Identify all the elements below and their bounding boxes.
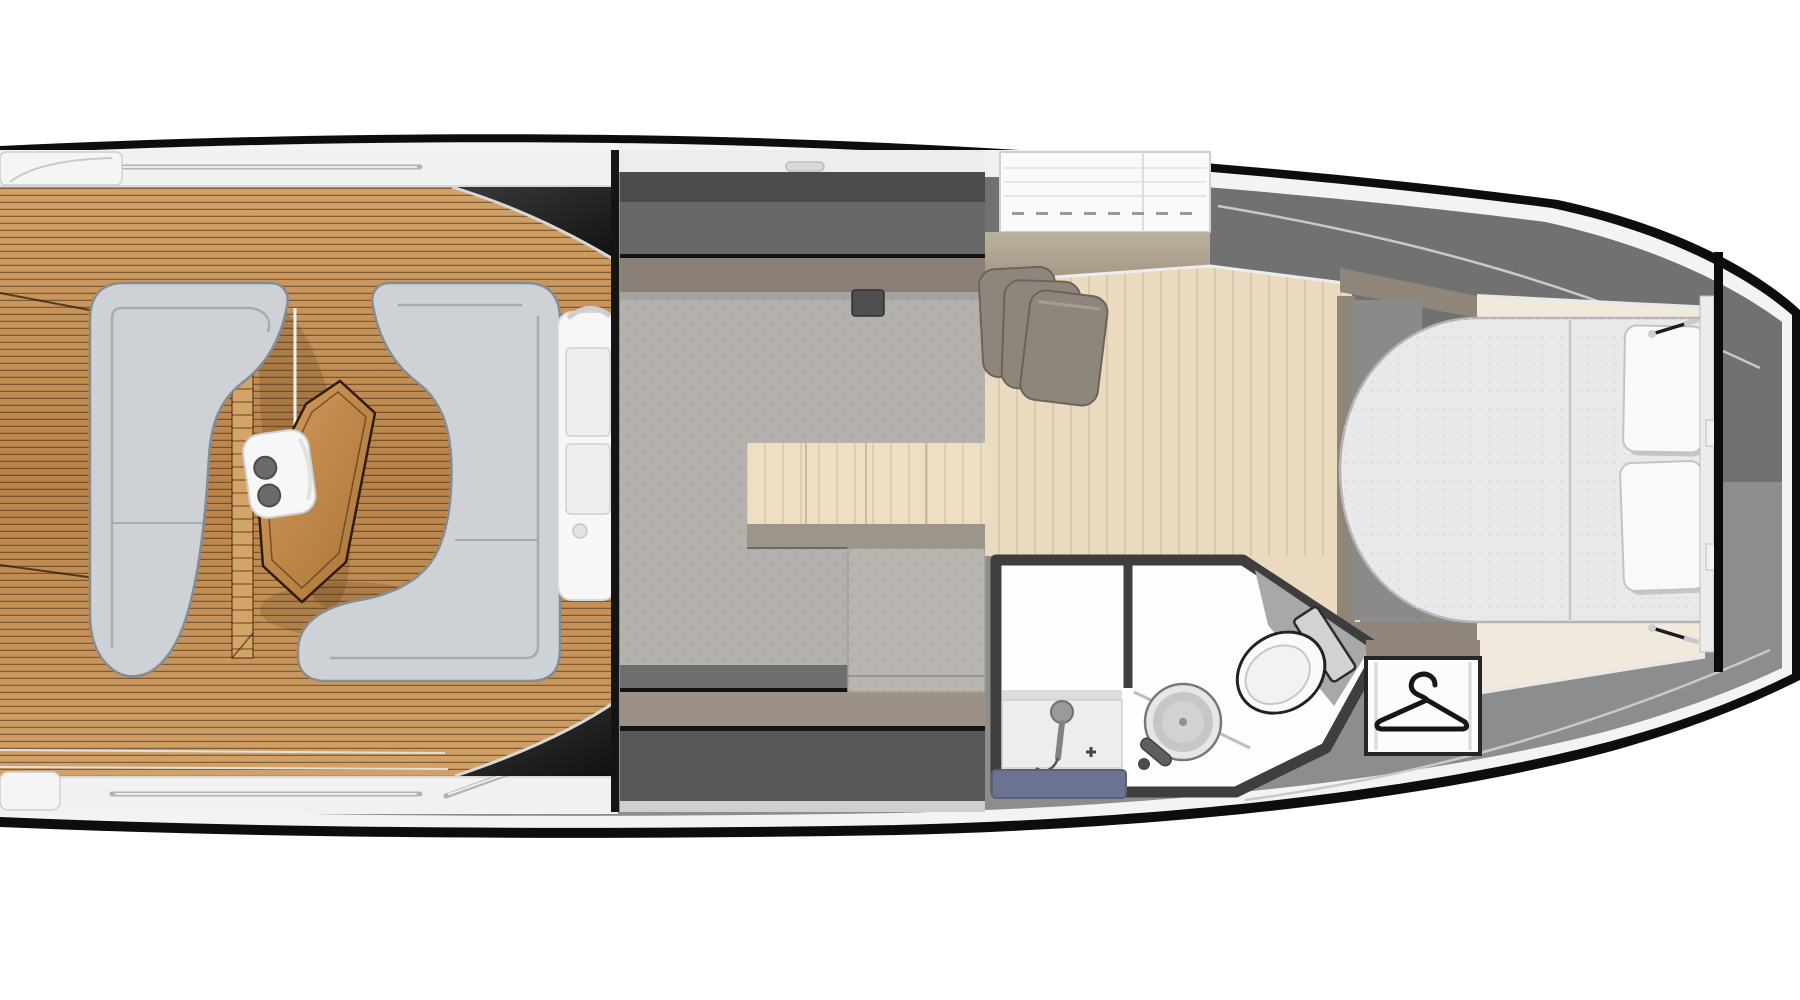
- folding-seat: [241, 428, 318, 520]
- cockpit-bulkhead-line: [611, 150, 619, 812]
- stern-step-top: [0, 152, 122, 185]
- helm-module-panel: [566, 348, 610, 436]
- bow-cabin: [1337, 252, 1723, 695]
- shower-grate: [992, 770, 1126, 798]
- salon-band-dark: [620, 172, 985, 202]
- shower-stall: [992, 690, 1126, 798]
- salon-band-line: [620, 254, 985, 258]
- gunwale-top: [0, 150, 618, 187]
- collision-bulkhead: [1714, 252, 1723, 672]
- basin-drain: [1179, 718, 1187, 726]
- folding-seat-base: [241, 428, 318, 520]
- shower-ledge: [1002, 690, 1122, 700]
- basin-faucet-base: [1138, 758, 1150, 770]
- salon-band-line: [620, 726, 985, 731]
- helm-module-panel: [566, 444, 610, 514]
- roof-handle: [786, 162, 824, 171]
- salon-band-light: [620, 292, 985, 300]
- strut-pivot: [1648, 330, 1656, 338]
- floorplan-canvas: [0, 0, 1800, 1000]
- salon-band-mid: [620, 202, 985, 254]
- berth-head-trim: [1700, 296, 1714, 652]
- stern-step-bottom: [0, 772, 60, 810]
- overhead-hatch: [1000, 152, 1210, 232]
- cushion: [1018, 289, 1109, 408]
- salon-band-brown: [620, 258, 985, 292]
- helm-module: [558, 308, 616, 600]
- salon-sill-strip: [620, 801, 985, 812]
- helm-module-knob: [573, 524, 587, 538]
- salon-band-taupe: [620, 692, 985, 726]
- hatch-panel: [1000, 152, 1210, 232]
- yacht-floorplan: [0, 0, 1800, 1000]
- salon-cabinet-kick: [747, 524, 985, 548]
- pillow: [1623, 325, 1705, 452]
- salon: [611, 150, 985, 812]
- shower-head: [1051, 701, 1073, 723]
- mid-cabin-berth-texture: [848, 548, 985, 692]
- strut-pivot: [1648, 624, 1656, 632]
- companion-step: [852, 290, 884, 316]
- salon-band-deep: [620, 731, 985, 801]
- pillow: [1620, 461, 1706, 592]
- salon-cabinet: [747, 443, 985, 548]
- wardrobe: [1366, 640, 1480, 754]
- mid-cabin-berth: [848, 548, 985, 692]
- wardrobe-top-shelf: [1366, 640, 1480, 658]
- shower-handle: [1058, 723, 1062, 758]
- cockpit: [0, 150, 618, 814]
